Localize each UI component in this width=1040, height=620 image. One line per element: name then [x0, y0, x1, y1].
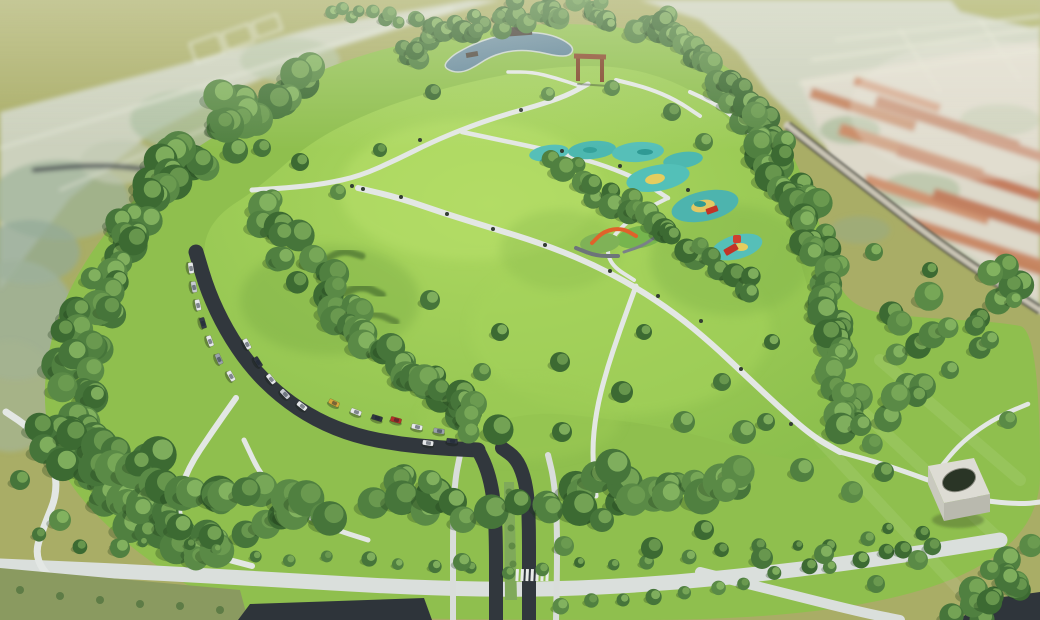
tree-highlight: [324, 504, 343, 523]
tree-highlight: [871, 245, 881, 255]
crosswalk-stripe: [525, 569, 529, 581]
tree-highlight: [67, 422, 84, 439]
tree-highlight: [945, 319, 956, 330]
tree-highlight: [494, 417, 511, 434]
tree-highlight: [75, 300, 88, 313]
tree-highlight: [37, 529, 45, 537]
tree-highlight: [287, 555, 294, 562]
tree-highlight: [859, 553, 868, 562]
tree-highlight: [747, 285, 757, 295]
tree-highlight: [986, 262, 1000, 276]
tree-highlight: [540, 564, 548, 572]
tree-highlight: [822, 225, 834, 237]
tree-highlight: [464, 406, 478, 420]
tree-highlight: [742, 579, 749, 586]
tree-highlight: [772, 567, 780, 575]
tree-highlight: [948, 605, 961, 618]
tree-highlight: [669, 228, 679, 238]
tree-highlight: [330, 262, 346, 278]
tree-highlight: [719, 375, 729, 385]
crosswalk-stripe: [530, 569, 534, 581]
tree-highlight: [356, 300, 371, 315]
tree-highlight: [105, 298, 119, 312]
tree: [71, 539, 88, 554]
tree-highlight: [574, 493, 594, 513]
tree-highlight: [559, 158, 573, 172]
tree-highlight: [578, 558, 584, 564]
tree-highlight: [612, 560, 618, 566]
tree-highlight: [621, 595, 628, 602]
dot: [699, 319, 703, 323]
tree-highlight: [134, 453, 148, 467]
dot: [510, 561, 517, 568]
tree-highlight: [514, 491, 528, 505]
tree-highlight: [277, 224, 291, 238]
tree-highlight: [821, 546, 832, 557]
tree-highlight: [759, 549, 771, 561]
dot: [508, 525, 515, 532]
crosswalk-stripe: [520, 569, 524, 581]
tree-highlight: [1012, 293, 1021, 302]
car-cabin: [426, 441, 431, 445]
tree-highlight: [58, 375, 75, 392]
tree-highlight: [986, 591, 1000, 605]
tree-highlight: [921, 527, 929, 535]
tree: [920, 262, 938, 278]
tree-highlight: [987, 333, 997, 343]
tree-highlight: [915, 552, 926, 563]
tree-highlight: [396, 559, 402, 565]
tree-highlight: [748, 268, 759, 279]
tree-highlight: [716, 582, 724, 590]
tree-highlight: [947, 363, 957, 373]
tree-highlight: [642, 325, 651, 334]
layer-atmosphere: [0, 0, 1040, 150]
tree-highlight: [627, 486, 645, 504]
tree-highlight: [891, 384, 907, 400]
tree-highlight: [325, 552, 332, 559]
tree-highlight: [176, 516, 191, 531]
ellipse-feature: [694, 201, 706, 207]
dot: [399, 195, 403, 199]
dot: [350, 184, 354, 188]
dot: [608, 269, 612, 273]
tree-highlight: [135, 499, 150, 514]
tree-highlight: [78, 541, 86, 549]
tree-highlight: [649, 539, 661, 551]
dot: [618, 164, 622, 168]
tree-highlight: [152, 439, 172, 459]
tree-highlight: [913, 388, 925, 400]
tree-highlight: [17, 472, 28, 483]
tree-highlight: [608, 184, 618, 194]
tree-highlight: [332, 278, 344, 290]
crosswalk-stripe: [515, 569, 519, 581]
tree: [8, 470, 31, 490]
car-cabin: [450, 439, 455, 443]
tree-highlight: [86, 359, 101, 374]
tree-highlight: [336, 185, 345, 194]
tree-highlight: [835, 345, 847, 357]
tree-highlight: [719, 544, 727, 552]
tree-highlight: [57, 511, 69, 523]
tree-highlight: [215, 545, 221, 551]
car-cabin: [189, 266, 193, 271]
tree: [30, 527, 46, 541]
tree-highlight: [465, 424, 477, 436]
tree-highlight: [651, 590, 660, 599]
tree-highlight: [427, 292, 438, 303]
tree-highlight: [740, 422, 753, 435]
dot: [361, 187, 365, 191]
tree: [962, 315, 985, 336]
tree-highlight: [144, 180, 161, 197]
tree-highlight: [507, 568, 514, 575]
tree-highlight: [763, 415, 773, 425]
tree-highlight: [687, 551, 695, 559]
tree-highlight: [808, 244, 822, 258]
tree-highlight: [559, 424, 570, 435]
dot: [216, 606, 224, 614]
dot: [56, 592, 64, 600]
tree-highlight: [1003, 548, 1018, 563]
tree-highlight: [873, 577, 883, 587]
tree-highlight: [294, 222, 312, 240]
tree-highlight: [881, 464, 892, 475]
tree-highlight: [589, 176, 600, 187]
tree-highlight: [575, 158, 584, 167]
tree-highlight: [886, 524, 892, 530]
tree: [911, 282, 944, 311]
tree-highlight: [900, 542, 910, 552]
tree-highlight: [545, 498, 560, 513]
tree-highlight: [386, 335, 402, 351]
tree-highlight: [426, 472, 439, 485]
tree-highlight: [589, 594, 597, 602]
tree-highlight: [479, 365, 489, 375]
tree-highlight: [663, 483, 680, 500]
tree-highlight: [279, 249, 292, 262]
tree-highlight: [69, 342, 86, 359]
tree-highlight: [89, 269, 101, 281]
tree-highlight: [1027, 536, 1040, 549]
dot: [445, 212, 449, 216]
tree-highlight: [757, 540, 765, 548]
tree-highlight: [798, 460, 811, 473]
dot: [739, 367, 743, 371]
tree-highlight: [698, 239, 707, 248]
tree-highlight: [770, 335, 779, 344]
tree-highlight: [259, 193, 276, 210]
tree-highlight: [925, 284, 941, 300]
park-aerial-rendering: [0, 0, 1040, 620]
tree-highlight: [701, 522, 712, 533]
tree-highlight: [59, 320, 72, 333]
dot: [543, 243, 547, 247]
tree-highlight: [301, 483, 321, 503]
tree: [863, 243, 883, 261]
tree-highlight: [449, 490, 464, 505]
tree-highlight: [91, 387, 104, 400]
tree-highlight: [896, 313, 910, 327]
tree-highlight: [733, 458, 751, 476]
dot: [176, 602, 184, 610]
tree-highlight: [796, 541, 802, 547]
tree-highlight: [561, 538, 572, 549]
tree-highlight: [117, 540, 128, 551]
tree: [1016, 534, 1040, 557]
tree-highlight: [866, 533, 874, 541]
tree-highlight: [840, 384, 854, 398]
tree-highlight: [497, 325, 507, 335]
tree-highlight: [141, 538, 147, 544]
tree-highlight: [708, 249, 719, 260]
dot: [656, 294, 660, 298]
rect-feature: [0, 0, 1040, 150]
tree-highlight: [813, 190, 830, 207]
park-rendering-canvas: [0, 0, 1040, 620]
tree-highlight: [129, 229, 145, 245]
tree-highlight: [86, 333, 103, 350]
tree-highlight: [972, 317, 983, 328]
tree-highlight: [826, 360, 843, 377]
tree-highlight: [367, 553, 375, 561]
tree-highlight: [928, 263, 937, 272]
tree-highlight: [558, 599, 567, 608]
tree-highlight: [824, 238, 838, 252]
tree-highlight: [987, 562, 998, 573]
tree-highlight: [608, 452, 628, 472]
tree-highlight: [681, 413, 693, 425]
tree-highlight: [297, 155, 307, 165]
tree-highlight: [254, 552, 261, 559]
tree-highlight: [459, 555, 469, 565]
tree-highlight: [433, 561, 440, 568]
tree-highlight: [869, 435, 880, 446]
dot: [686, 188, 690, 192]
tree-highlight: [196, 150, 211, 165]
tree-highlight: [1003, 569, 1017, 583]
tree-highlight: [884, 545, 893, 554]
dot: [136, 600, 144, 608]
tree-highlight: [294, 273, 306, 285]
tree-highlight: [188, 539, 194, 545]
tree-highlight: [930, 539, 940, 549]
tree-highlight: [309, 247, 324, 262]
tree-highlight: [849, 483, 861, 495]
tree-highlight: [598, 510, 611, 523]
tree-highlight: [435, 380, 447, 392]
tree-highlight: [682, 587, 689, 594]
tree-highlight: [143, 209, 159, 225]
scene-root: [0, 0, 1040, 620]
tree-highlight: [557, 354, 568, 365]
tree-highlight: [58, 451, 76, 469]
tree: [108, 538, 131, 558]
tree-highlight: [1005, 413, 1015, 423]
dot: [16, 586, 24, 594]
ellipse-feature: [830, 216, 890, 244]
dot: [789, 422, 793, 426]
dot: [509, 543, 516, 550]
tree-highlight: [858, 417, 870, 429]
tree-highlight: [619, 383, 631, 395]
tree-highlight: [207, 526, 221, 540]
dot: [96, 596, 104, 604]
tree-highlight: [35, 415, 51, 431]
tree-highlight: [1002, 256, 1016, 270]
rect-feature: [733, 235, 741, 243]
tree-highlight: [242, 480, 258, 496]
dot: [491, 227, 495, 231]
tree-highlight: [818, 299, 835, 316]
tree-highlight: [800, 211, 814, 225]
tree-highlight: [722, 479, 736, 493]
tree-highlight: [823, 322, 839, 338]
